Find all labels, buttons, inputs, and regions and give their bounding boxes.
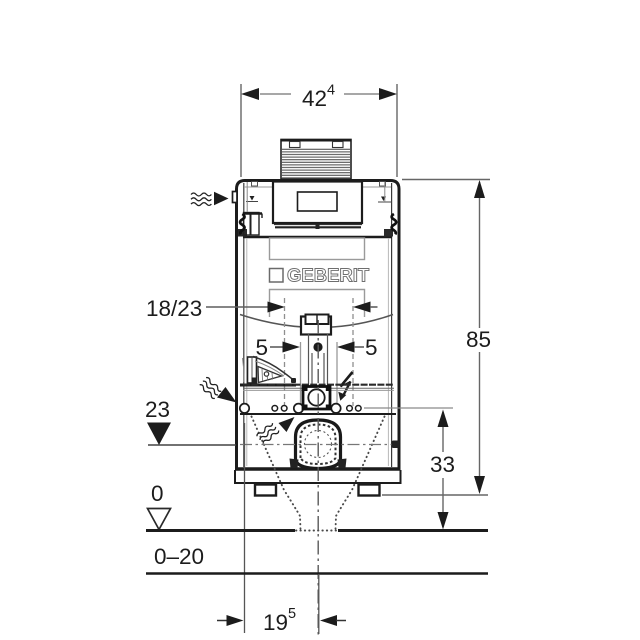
- svg-text:0–20: 0–20: [154, 544, 204, 569]
- svg-text:5: 5: [255, 335, 268, 360]
- svg-text:5: 5: [365, 335, 378, 360]
- svg-text:0: 0: [151, 481, 164, 506]
- svg-text:33: 33: [430, 452, 455, 477]
- svg-text:23: 23: [145, 397, 170, 422]
- svg-text:18/23: 18/23: [146, 296, 202, 321]
- svg-text:4: 4: [327, 83, 335, 99]
- svg-text:42: 42: [302, 86, 327, 111]
- svg-text:19: 19: [263, 610, 288, 635]
- svg-text:85: 85: [466, 327, 491, 352]
- svg-text:GEBERIT: GEBERIT: [287, 265, 370, 286]
- svg-text:5: 5: [288, 606, 296, 622]
